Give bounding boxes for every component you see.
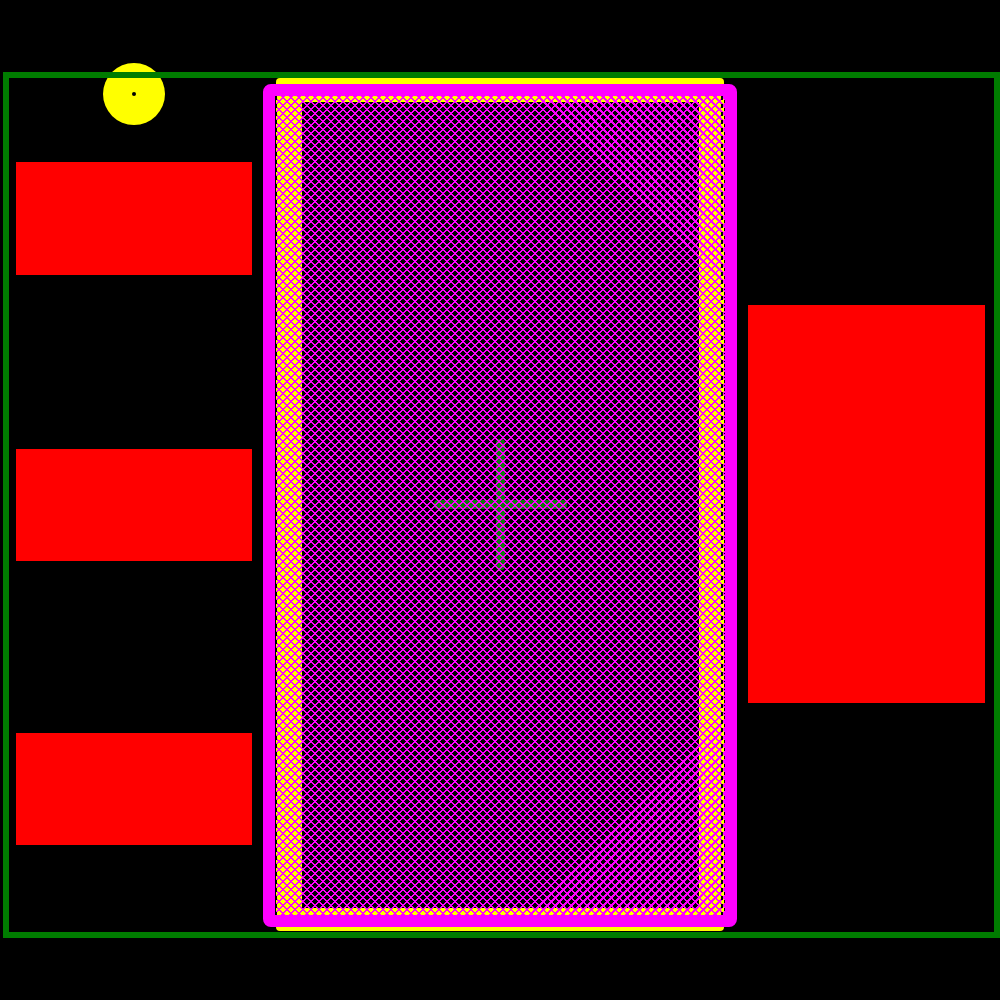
pad-right[interactable]	[748, 305, 985, 703]
paste-edge-dashed-right	[721, 96, 723, 915]
thermal-pad[interactable]	[263, 84, 737, 927]
pad-left-1[interactable]	[16, 162, 252, 275]
hatch-pattern-overlay	[275, 96, 725, 915]
paste-edge-dashed-left	[275, 96, 277, 915]
pad-left-2[interactable]	[16, 449, 252, 561]
pad-left-3[interactable]	[16, 733, 252, 845]
pcb-canvas	[0, 0, 1000, 1000]
